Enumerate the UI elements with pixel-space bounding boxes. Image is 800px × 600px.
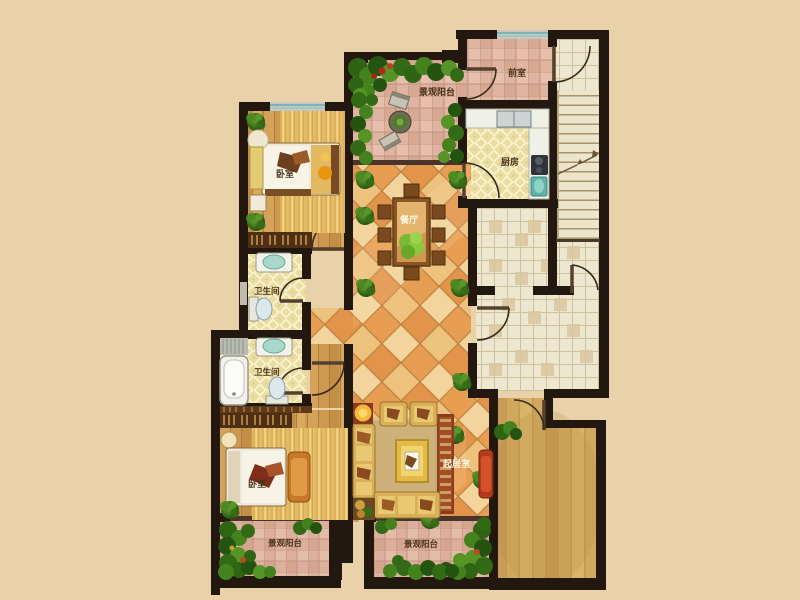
- svg-text:卧室: 卧室: [248, 478, 266, 489]
- svg-text:景观阳台: 景观阳台: [268, 538, 303, 548]
- svg-text:起居室: 起居室: [442, 458, 470, 469]
- svg-text:景观阳台: 景观阳台: [419, 86, 455, 97]
- svg-text:景观阳台: 景观阳台: [404, 539, 439, 549]
- svg-text:卫生间: 卫生间: [254, 367, 280, 377]
- svg-text:厨房: 厨房: [501, 156, 519, 167]
- svg-text:卧室: 卧室: [276, 168, 294, 179]
- svg-text:前室: 前室: [508, 67, 526, 78]
- svg-text:卫生间: 卫生间: [254, 286, 280, 296]
- svg-text:餐厅: 餐厅: [399, 214, 418, 225]
